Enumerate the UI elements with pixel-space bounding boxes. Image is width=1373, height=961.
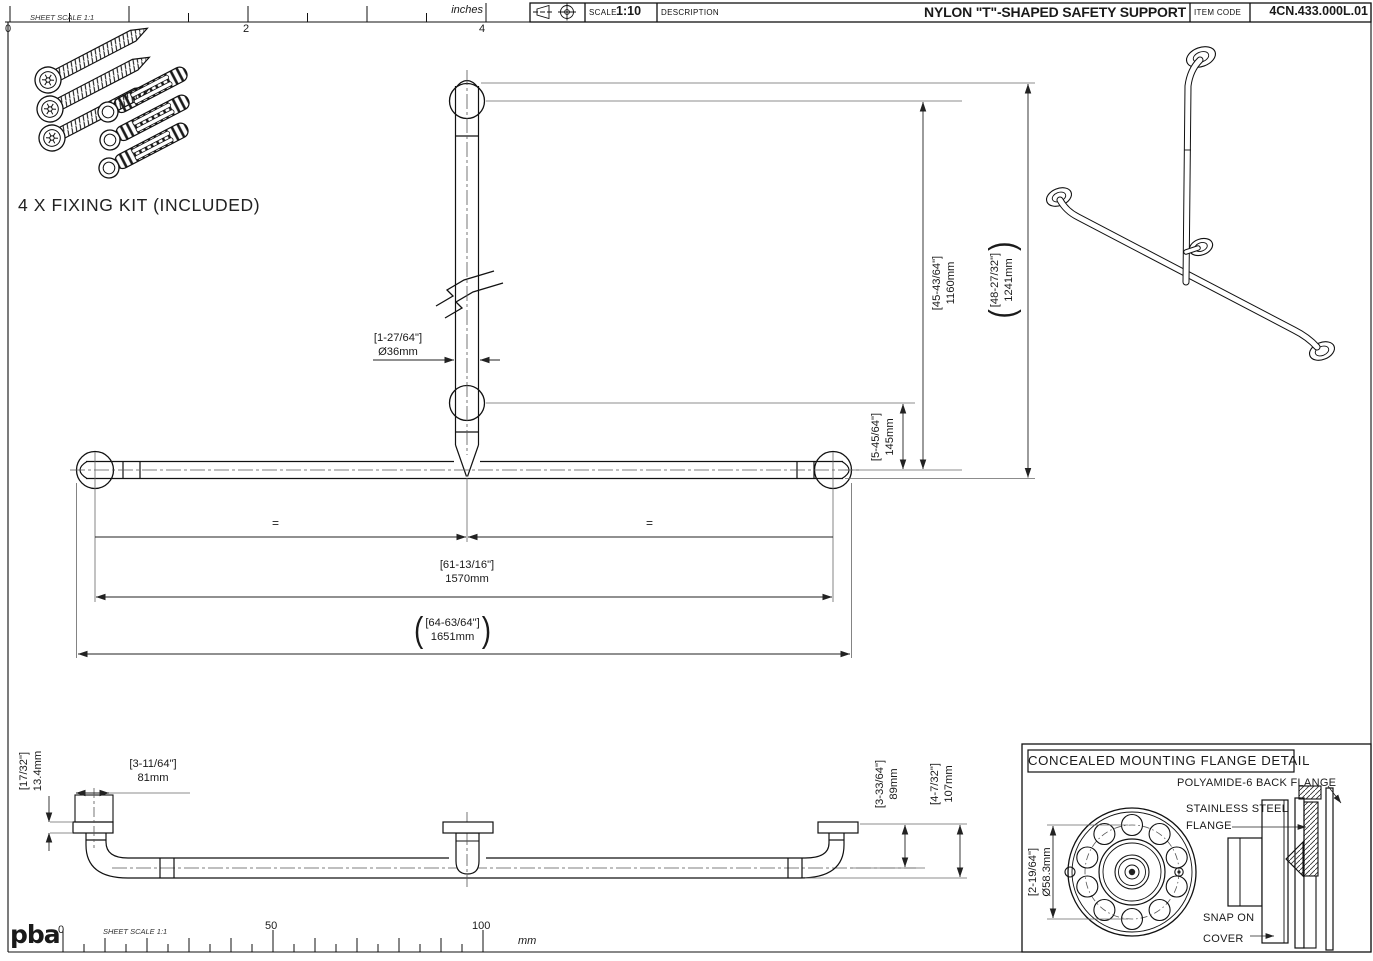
dim-145-mm: 145mm xyxy=(883,418,897,455)
fixing-kit-label: 4 X FIXING KIT (INCLUDED) xyxy=(18,195,260,216)
dim-offset-81: [3-11/64"] 81mm xyxy=(113,757,193,785)
close-paren: ) xyxy=(986,240,1019,253)
dim-span-1570: [61-13/16"] 1570mm xyxy=(407,558,527,586)
drawing-title: NYLON "T"-SHAPED SAFETY SUPPORT xyxy=(700,4,1186,20)
fixing-kit-illustration xyxy=(30,17,192,182)
item-code-label: ITEM CODE xyxy=(1194,8,1241,17)
dim-89-inch: [3-33/64"] xyxy=(873,760,887,808)
dim-height-1160: [45-43/64"] 1160mm xyxy=(930,223,958,343)
drawing-linework xyxy=(0,0,1373,961)
dim-1241-mm: 1241mm xyxy=(1002,258,1016,302)
dim-1570-mm: 1570mm xyxy=(445,572,489,586)
open-paren: ( xyxy=(412,614,425,647)
dim-tube-diameter: [1-27/64"] Ø36mm xyxy=(365,331,431,359)
bottom-ruler-unit: mm xyxy=(518,935,536,947)
steel-flange-label-2: FLANGE xyxy=(1186,820,1232,832)
snap-cover-label-1: SNAP ON xyxy=(1203,912,1254,924)
flange-detail-title: CONCEALED MOUNTING FLANGE DETAIL xyxy=(1028,753,1294,768)
equal-mark-right: = xyxy=(646,516,653,530)
front-view-dimensions xyxy=(77,83,1036,658)
sheet-frame xyxy=(5,3,1371,952)
top-ruler-unit: inches xyxy=(437,4,483,16)
dim-1241-inch: [48-27/32"] xyxy=(988,253,1002,307)
dim-58-3-inch: [2-19/64"] xyxy=(1026,848,1040,896)
dim-bolt-circle: [2-19/64"] Ø58.3mm xyxy=(1027,824,1053,920)
snap-cover-label-2: COVER xyxy=(1203,933,1244,945)
steel-flange-label-1: STAINLESS STEEL xyxy=(1186,803,1288,815)
dim-58-3-mm: Ø58.3mm xyxy=(1040,847,1054,896)
front-view xyxy=(70,70,860,489)
dim-wall-107: [4-7/32"] 107mm xyxy=(929,736,955,832)
bottom-ruler-scale-note: SHEET SCALE 1:1 xyxy=(103,927,167,936)
projection-symbol-icon xyxy=(533,4,576,21)
open-paren: ( xyxy=(986,307,1019,320)
back-flange-label: POLYAMIDE-6 BACK FLANGE xyxy=(1177,777,1327,789)
bottom-ruler-tick-50: 50 xyxy=(265,920,277,932)
dim-tube-diameter-inch: [1-27/64"] xyxy=(374,331,422,345)
flange-detail xyxy=(1022,744,1371,952)
dim-thickness-13-4: [17/32"] 13.4mm xyxy=(18,726,44,816)
equal-mark-left: = xyxy=(272,516,279,530)
dim-107-inch: [4-7/32"] xyxy=(928,763,942,805)
item-code-value: 4CN.433.000L.01 xyxy=(1250,4,1368,18)
bottom-ruler-tick-0: 0 xyxy=(58,924,64,936)
dim-1651-inch: [64-63/64"] xyxy=(425,616,479,630)
dim-height-1241: ( [48-27/32"] 1241mm ) xyxy=(986,215,1018,345)
dim-width-1651: ( [64-63/64"] 1651mm ) xyxy=(412,616,493,644)
top-ruler-tick-4: 4 xyxy=(479,23,485,35)
bottom-ruler-tick-100: 100 xyxy=(472,920,490,932)
scale-label: SCALE xyxy=(589,8,617,17)
dim-89-mm: 89mm xyxy=(887,768,901,799)
dim-81-mm: 81mm xyxy=(137,771,168,785)
dim-1160-inch: [45-43/64"] xyxy=(930,256,944,310)
close-paren: ) xyxy=(480,614,493,647)
dim-tube-diameter-mm: Ø36mm xyxy=(378,345,418,359)
top-ruler-tick-2: 2 xyxy=(243,23,249,35)
isometric-view xyxy=(1044,43,1337,364)
pba-logo: pba xyxy=(10,920,60,949)
dim-1651-mm: 1651mm xyxy=(431,630,475,644)
dim-13-4-inch: [17/32"] xyxy=(17,752,31,790)
dim-1160-mm: 1160mm xyxy=(944,262,958,305)
dim-13-4-mm: 13.4mm xyxy=(31,751,45,791)
scale-value: 1:10 xyxy=(616,4,641,18)
dim-1570-inch: [61-13/16"] xyxy=(440,558,494,572)
top-ruler-scale-note: SHEET SCALE 1:1 xyxy=(30,13,94,22)
drawing-sheet: 0 SHEET SCALE 1:1 2 4 inches SCALE 1:10 … xyxy=(0,0,1373,961)
dim-145-inch: [5-45/64"] xyxy=(869,413,883,461)
dim-107-mm: 107mm xyxy=(942,765,956,802)
dim-wall-89: [3-33/64"] 89mm xyxy=(874,736,900,832)
top-ruler-tick-0: 0 xyxy=(5,23,11,35)
dim-81-inch: [3-11/64"] xyxy=(129,757,176,771)
side-view xyxy=(73,788,916,890)
dim-drop-145: [5-45/64"] 145mm xyxy=(870,392,896,482)
